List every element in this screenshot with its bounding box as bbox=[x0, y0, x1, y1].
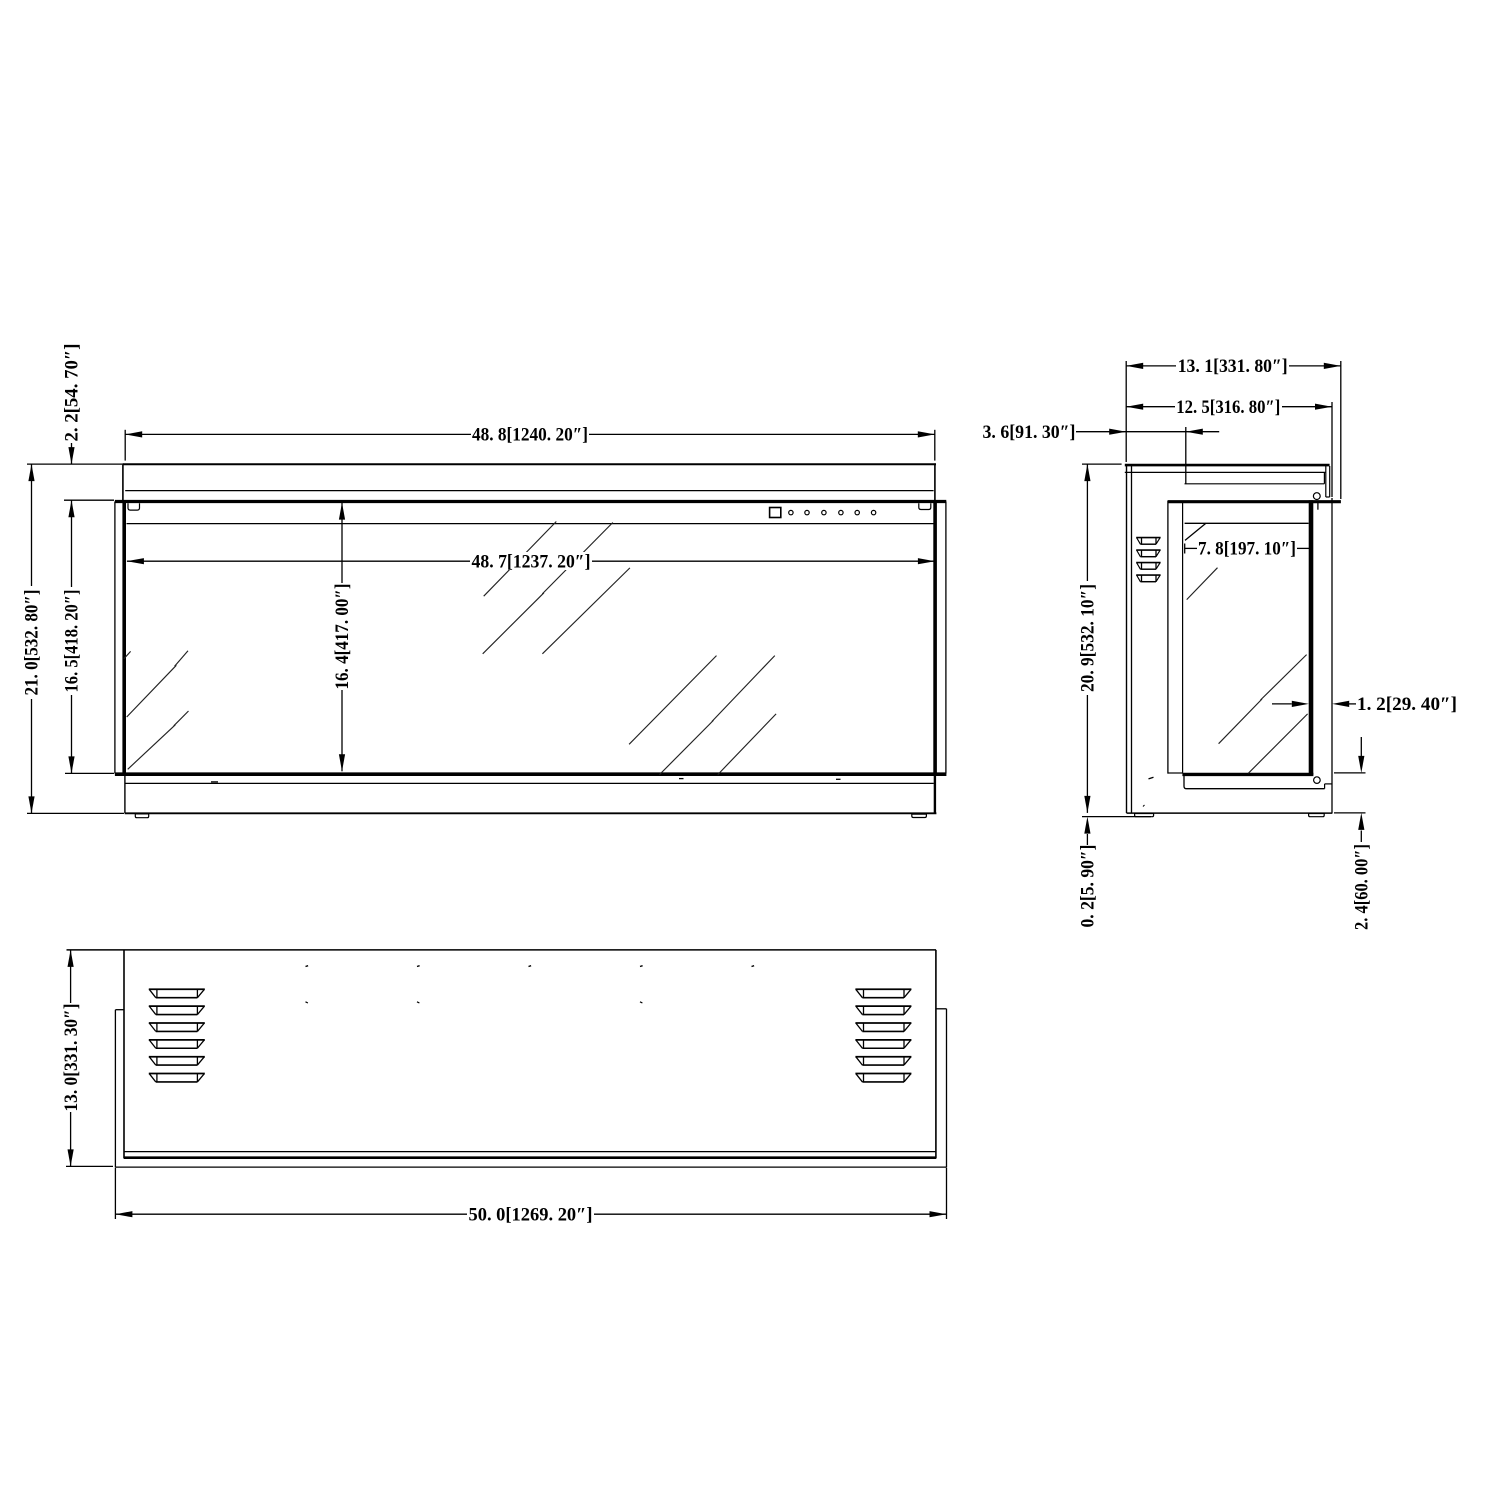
svg-text:16. 4[417. 00″]: 16. 4[417. 00″] bbox=[332, 584, 353, 690]
svg-text:48. 7[1237. 20″]: 48. 7[1237. 20″] bbox=[472, 551, 591, 572]
svg-text:50. 0[1269. 20″]: 50. 0[1269. 20″] bbox=[469, 1204, 593, 1225]
svg-text:1. 2[29. 40″]: 1. 2[29. 40″] bbox=[1357, 694, 1457, 715]
svg-text:16. 5[418. 20″]: 16. 5[418. 20″] bbox=[62, 590, 83, 693]
svg-text:12. 5[316. 80″]: 12. 5[316. 80″] bbox=[1176, 397, 1280, 418]
svg-text:0. 2[5. 90″]: 0. 2[5. 90″] bbox=[1078, 845, 1099, 928]
svg-text:2. 4[60. 00″]: 2. 4[60. 00″] bbox=[1352, 844, 1373, 930]
svg-text:20. 9[532. 10″]: 20. 9[532. 10″] bbox=[1078, 584, 1099, 692]
svg-text:21. 0[532. 80″]: 21. 0[532. 80″] bbox=[22, 590, 43, 696]
svg-text:3. 6[91. 30″]: 3. 6[91. 30″] bbox=[983, 422, 1076, 443]
svg-text:2. 2[54. 70″]: 2. 2[54. 70″] bbox=[62, 344, 83, 442]
svg-text:48. 8[1240. 20″]: 48. 8[1240. 20″] bbox=[472, 425, 588, 446]
svg-text:13. 1[331. 80″]: 13. 1[331. 80″] bbox=[1178, 356, 1288, 377]
svg-text:13. 0[331. 30″]: 13. 0[331. 30″] bbox=[61, 1004, 82, 1112]
svg-text:7. 8[197. 10″]: 7. 8[197. 10″] bbox=[1198, 539, 1296, 560]
